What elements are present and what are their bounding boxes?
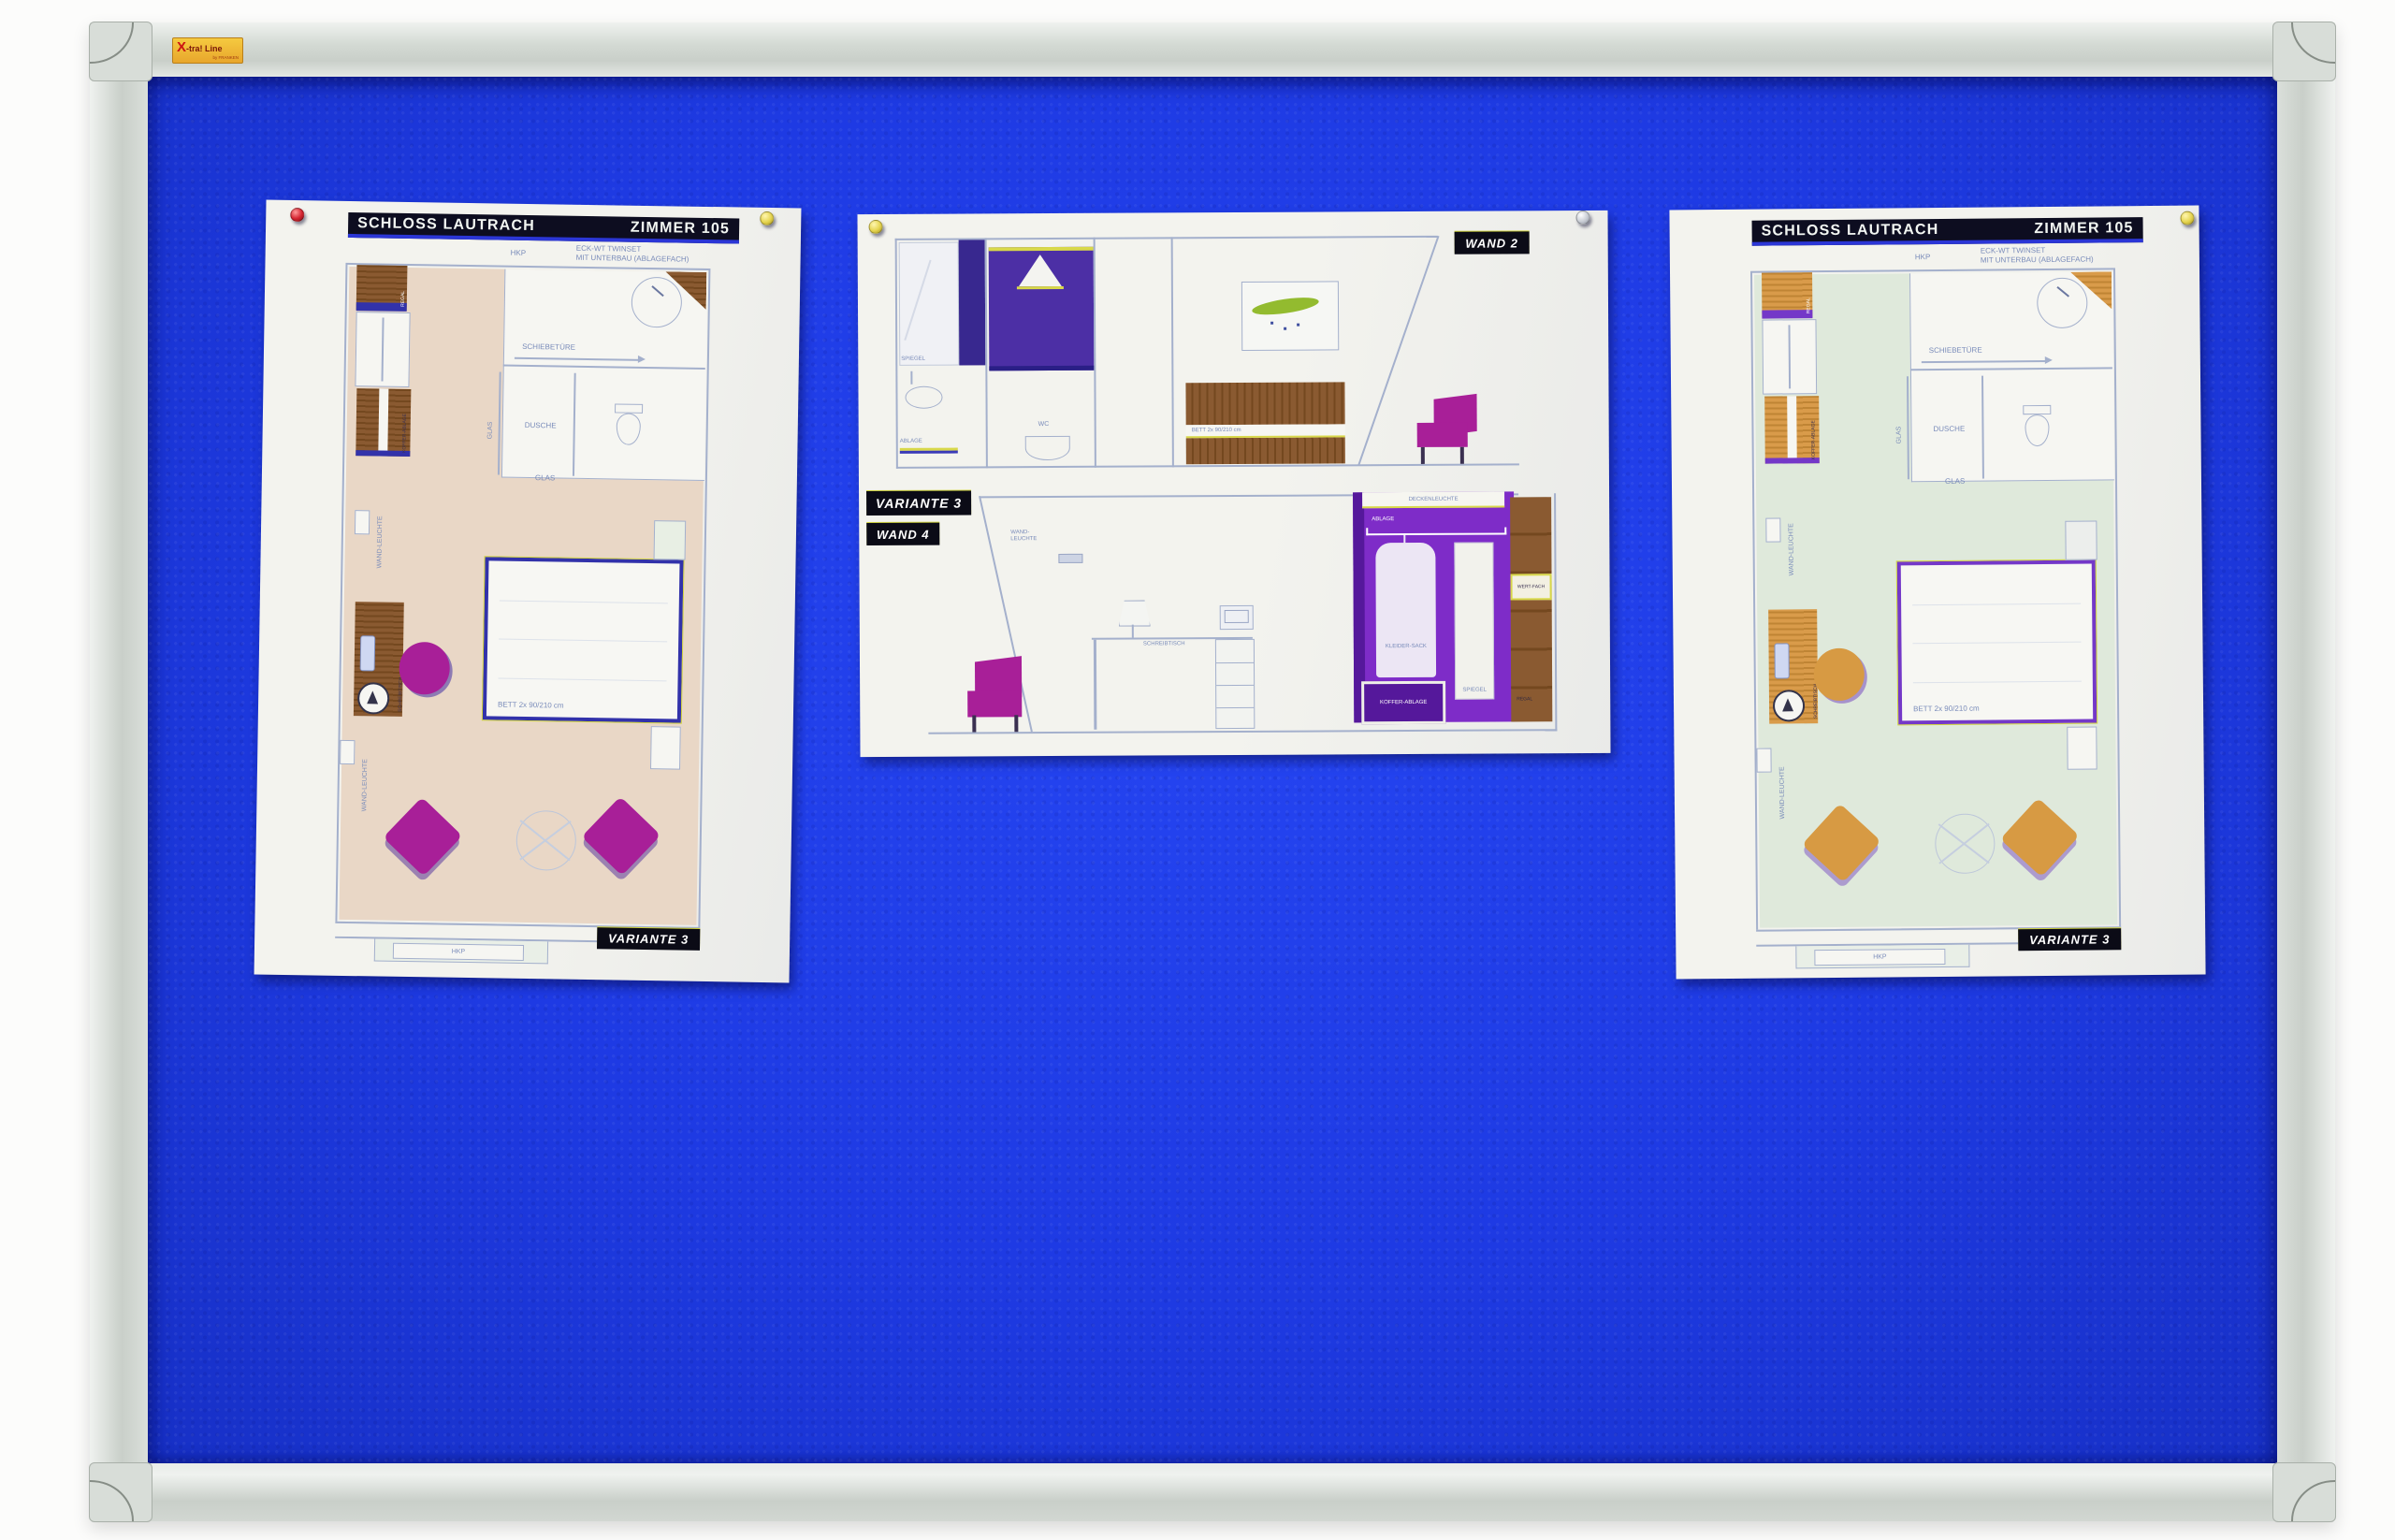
note-line2: MIT UNTERBAU (ABLAGEFACH) bbox=[1981, 255, 2094, 265]
pushpin-gray-icon bbox=[1575, 211, 1589, 225]
hkp-label: HKP bbox=[452, 949, 466, 955]
wandleuchte-label-2: WAND-LEUCHTE bbox=[361, 721, 370, 811]
corner-washbasin bbox=[2037, 278, 2087, 328]
koffer-label: KOFFER-ABLAGE bbox=[402, 414, 408, 453]
header-room: ZIMMER 105 bbox=[631, 219, 731, 238]
variante-label: VARIANTE 3 bbox=[2018, 928, 2121, 951]
wand4-right-edge bbox=[1554, 493, 1557, 731]
glas-label-vertical: GLAS bbox=[487, 422, 495, 440]
divider-1 bbox=[985, 238, 988, 468]
shower-panel-narrow bbox=[959, 240, 986, 365]
wardrobe-mirror: SPIEGEL bbox=[1454, 543, 1494, 700]
note-line1: ECK-WT TWINSET bbox=[576, 244, 642, 254]
cone-lamp-icon bbox=[1019, 254, 1062, 286]
drawer-unit bbox=[1215, 639, 1256, 729]
glas-label-horizontal: GLAS bbox=[535, 473, 555, 483]
desk-chair bbox=[1814, 648, 1865, 701]
wall-picture bbox=[1241, 281, 1339, 351]
rail-hook-right bbox=[1504, 527, 1506, 534]
suitcase-shelf: KOFFER-ABLAGE bbox=[1361, 681, 1445, 724]
garment-bag: KLEIDER-SACK bbox=[1375, 543, 1436, 677]
frame-left bbox=[90, 22, 149, 1521]
doc-header: SCHLOSS LAUTRACH ZIMMER 105 bbox=[348, 212, 739, 244]
round-table-sketch bbox=[1935, 813, 1996, 874]
note-hkp: HKP bbox=[1915, 253, 1931, 261]
compass-icon bbox=[1773, 690, 1805, 721]
koffer-unit-gap bbox=[378, 388, 388, 456]
wandleuchte-label-2: WAND-LEUCHTE bbox=[1778, 729, 1787, 819]
bed: BETT 2x 90/210 cm bbox=[1897, 560, 2097, 725]
corner-cap-bottom-left bbox=[89, 1462, 152, 1522]
regal-label-mid: REGAL bbox=[1517, 697, 1532, 703]
rail-hook-left bbox=[1366, 528, 1368, 535]
wandleuchte-label-1: WAND-LEUCHTE bbox=[1788, 486, 1796, 575]
schiebetuere-label: SCHIEBETÜRE bbox=[522, 342, 575, 352]
desk-lamp-shade bbox=[1119, 600, 1151, 626]
brand-x: X bbox=[177, 39, 186, 55]
floorplan-doc-left: SCHLOSS LAUTRACH ZIMMER 105 HKP ECK-WT T… bbox=[254, 200, 802, 983]
wand4-label: WAND 4 bbox=[866, 523, 939, 545]
pushpin-red-icon bbox=[290, 208, 304, 222]
nightstand bbox=[2067, 727, 2097, 770]
kleidersack-label: KLEIDER-SACK bbox=[1386, 644, 1427, 649]
bed-size-label: BETT 2x 90/210 cm bbox=[1913, 704, 1980, 713]
header-title: SCHLOSS LAUTRACH bbox=[357, 215, 535, 235]
schiebetuere-label: SCHIEBETÜRE bbox=[1929, 346, 1982, 356]
wall-light-1 bbox=[1765, 517, 1780, 542]
leaf-art bbox=[1251, 295, 1319, 318]
desk-leg bbox=[1094, 640, 1097, 730]
wand2-bottom-edge bbox=[896, 463, 1519, 468]
bed-base bbox=[1186, 435, 1345, 464]
note-line2: MIT UNTERBAU (ABLAGEFACH) bbox=[576, 254, 689, 264]
pushpin-yellow-icon bbox=[760, 211, 774, 225]
glas-label-horizontal: GLAS bbox=[1945, 477, 1965, 486]
pushpin-yellow-icon bbox=[869, 220, 883, 234]
ablage-label: ABLAGE bbox=[900, 439, 922, 445]
schreibtisch-label-mid: SCHREIBTISCH bbox=[1143, 641, 1185, 647]
spiegel2-label: SPIEGEL bbox=[1462, 688, 1487, 693]
wardrobe-column bbox=[1510, 497, 1552, 721]
valuables-box: WERT-FACH bbox=[1511, 574, 1552, 600]
wandleuchte-label-1: WAND-LEUCHTE bbox=[376, 478, 385, 568]
brand-name: -tra! Line bbox=[186, 44, 223, 53]
wc-elevation bbox=[1025, 436, 1070, 460]
kofferablage-label: KOFFER-ABLAGE bbox=[1377, 700, 1430, 705]
wall-light-1 bbox=[355, 510, 370, 534]
divider-3 bbox=[1171, 237, 1174, 467]
regal-label: REGAL bbox=[401, 291, 407, 307]
frame-top bbox=[90, 22, 2335, 78]
header-title: SCHLOSS LAUTRACH bbox=[1762, 221, 1939, 240]
doc-header: SCHLOSS LAUTRACH ZIMMER 105 bbox=[1752, 217, 2143, 246]
ceiling-light-bar: DECKENLEUCHTE bbox=[1362, 491, 1504, 508]
chair-wand2 bbox=[1417, 397, 1477, 464]
koffer-unit-gap bbox=[1787, 396, 1797, 463]
header-room: ZIMMER 105 bbox=[2034, 220, 2133, 238]
pushpin-yellow-icon bbox=[2180, 211, 2194, 225]
desk-lamp-plan bbox=[360, 635, 376, 671]
floorplan-doc-right: SCHLOSS LAUTRACH ZIMMER 105 HKP ECK-WT T… bbox=[1669, 206, 2205, 980]
variante-label: VARIANTE 3 bbox=[597, 927, 700, 951]
corner-cap-top-left bbox=[89, 22, 152, 81]
radiator: HKP bbox=[1814, 949, 1945, 966]
corner-cap-top-right bbox=[2272, 22, 2336, 81]
frame-right bbox=[2276, 22, 2335, 1521]
basin-outline bbox=[905, 386, 942, 409]
headboard bbox=[1185, 382, 1344, 425]
bed-label-band: BETT 2x 90/210 cm bbox=[1186, 424, 1345, 436]
wc-label: WC bbox=[1038, 421, 1050, 429]
laptop bbox=[1220, 605, 1254, 630]
tap-line bbox=[910, 371, 912, 385]
deckenleuchte-label: DECKENLEUCHTE bbox=[1409, 496, 1459, 501]
bett-label-mid: BETT 2x 90/210 cm bbox=[1186, 428, 1241, 433]
ablage2-label: ABLAGE bbox=[1372, 516, 1394, 523]
shower-panel-wide bbox=[989, 247, 1095, 371]
variante-label-mid: VARIANTE 3 bbox=[866, 490, 971, 516]
note-hkp: HKP bbox=[511, 249, 527, 257]
wall-light-2 bbox=[340, 740, 355, 764]
luggage-rack bbox=[2065, 521, 2097, 560]
desk-lamp-stem bbox=[1132, 625, 1134, 638]
wand2-left-edge bbox=[895, 239, 898, 469]
shelf-unit-shadow bbox=[356, 302, 407, 312]
wandleuchte-label-mid: WAND-LEUCHTE bbox=[1010, 530, 1052, 543]
shelf-line-blue bbox=[900, 451, 958, 454]
dusche-label: DUSCHE bbox=[525, 421, 557, 430]
dusche-label: DUSCHE bbox=[1933, 425, 1965, 433]
regal-label: REGAL bbox=[1807, 298, 1812, 313]
divider-2 bbox=[1094, 238, 1096, 468]
note-line1: ECK-WT TWINSET bbox=[1981, 246, 2046, 255]
bag-hook bbox=[1403, 535, 1405, 545]
arrow-head-icon bbox=[2045, 356, 2053, 364]
hkp-label: HKP bbox=[1873, 953, 1886, 960]
luggage-rack bbox=[654, 520, 687, 560]
nightstand bbox=[650, 726, 681, 769]
glas-label-vertical: GLAS bbox=[1895, 427, 1903, 444]
koffer-label: KOFFER-ABLAGE bbox=[1811, 420, 1817, 459]
wall-light-mid bbox=[1058, 554, 1082, 563]
mirror-elevation bbox=[899, 242, 960, 366]
bed-size-label: BETT 2x 90/210 cm bbox=[498, 700, 564, 709]
wertfach-label: WERT-FACH bbox=[1516, 584, 1547, 589]
desk-lamp-plan bbox=[1774, 643, 1789, 678]
frame-bottom bbox=[90, 1462, 2335, 1521]
wc-cistern bbox=[2023, 405, 2051, 414]
wall-light-2 bbox=[1756, 748, 1771, 773]
elevation-doc-middle: SPIEGEL ABLAGE WC BETT 2x 90/210 cm WAND… bbox=[857, 211, 1610, 757]
bed: BETT 2x 90/210 cm bbox=[483, 557, 684, 722]
chair-wand4 bbox=[967, 657, 1033, 732]
arrow-head-icon bbox=[638, 356, 646, 363]
corner-cap-bottom-right bbox=[2272, 1462, 2336, 1522]
wand2-label: WAND 2 bbox=[1455, 231, 1530, 254]
brand-sticker: X-tra! Line by FRANKEN bbox=[172, 37, 243, 64]
radiator: HKP bbox=[393, 943, 524, 961]
shelf-unit-shadow bbox=[1762, 310, 1812, 318]
wc-cistern bbox=[615, 403, 643, 413]
spiegel-label: SPIEGEL bbox=[901, 356, 925, 363]
brand-byline: by FRANKEN bbox=[177, 56, 239, 61]
